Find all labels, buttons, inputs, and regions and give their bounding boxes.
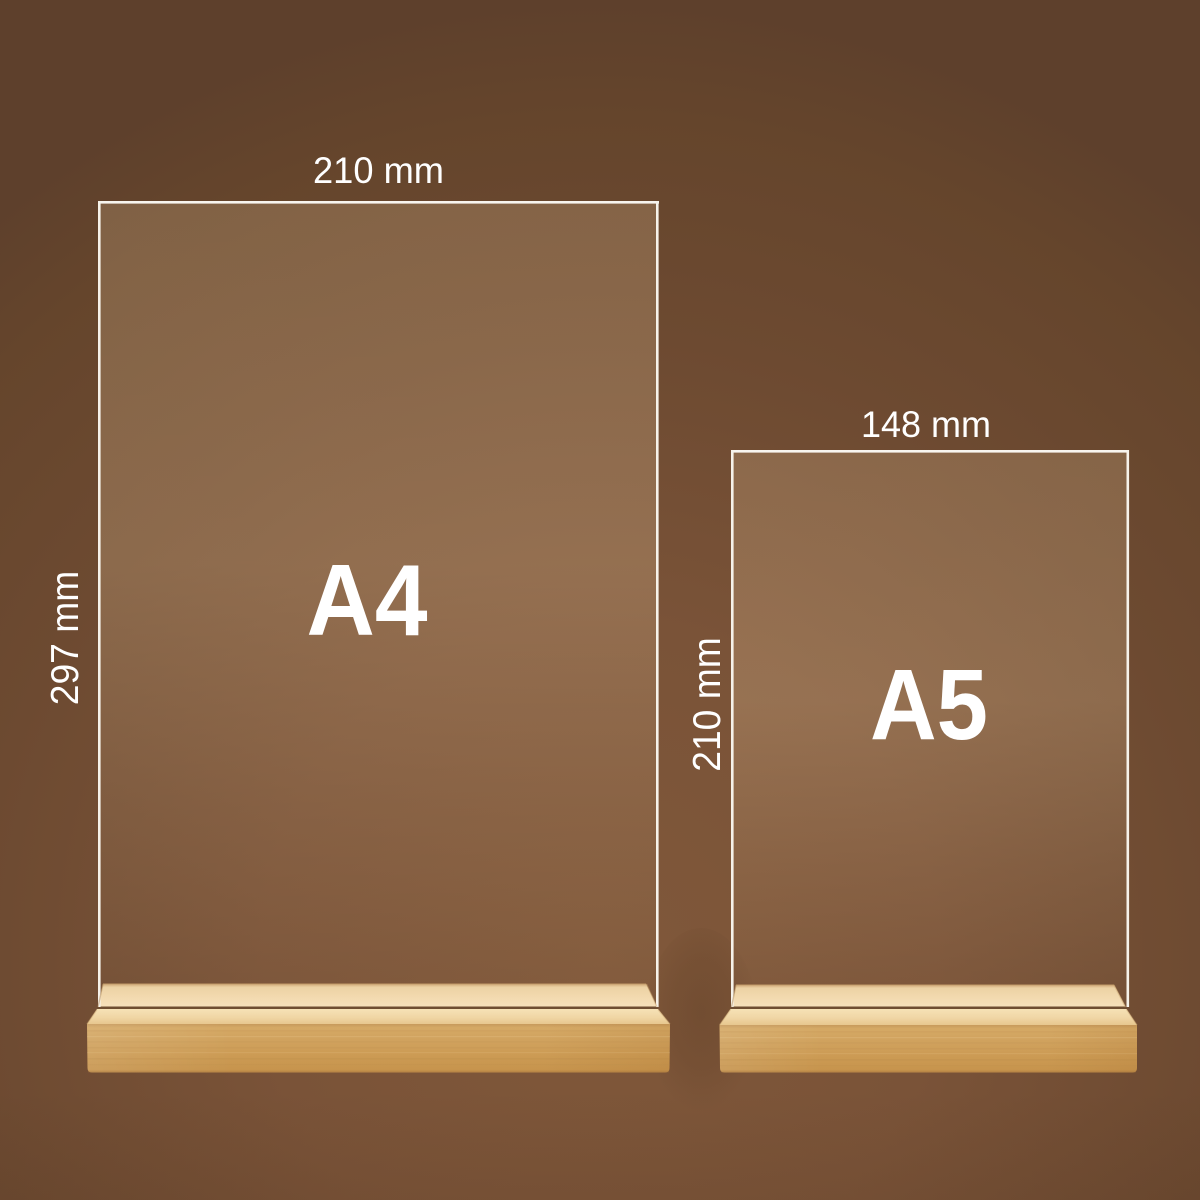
svg-text:A5: A5	[870, 649, 988, 761]
svg-text:A4: A4	[307, 543, 428, 657]
svg-text:297 mm: 297 mm	[44, 571, 87, 706]
svg-text:148 mm: 148 mm	[861, 404, 991, 445]
svg-text:210 mm: 210 mm	[313, 150, 444, 191]
svg-text:210 mm: 210 mm	[686, 637, 729, 772]
